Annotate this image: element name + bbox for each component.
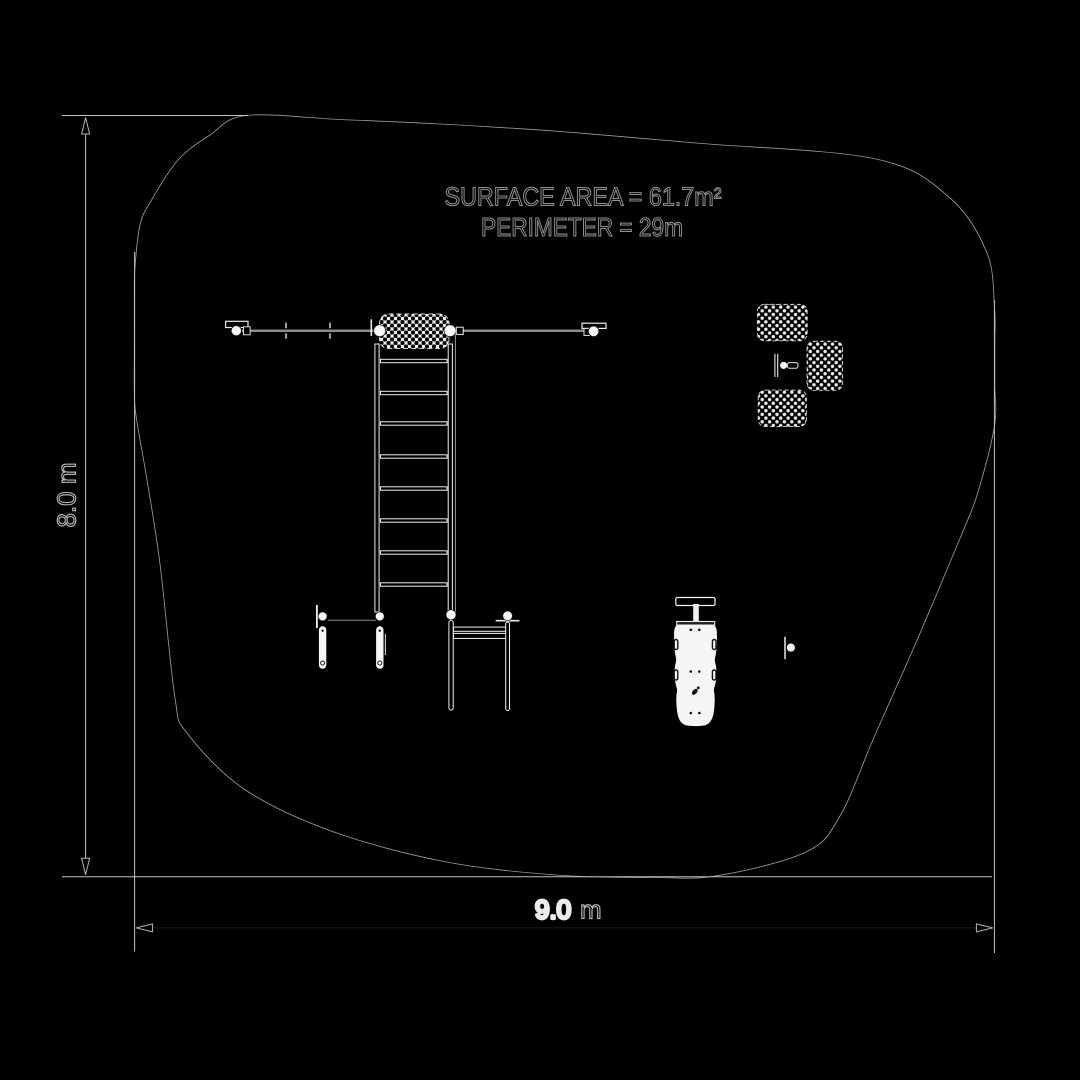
svg-text:8.0 m: 8.0 m (52, 462, 82, 527)
svg-text:m: m (580, 895, 602, 925)
svg-text:PERIMETER = 29m: PERIMETER = 29m (481, 212, 683, 242)
svg-text:9.0: 9.0 (535, 895, 571, 925)
svg-text:SURFACE AREA = 61.7m²: SURFACE AREA = 61.7m² (445, 182, 722, 212)
